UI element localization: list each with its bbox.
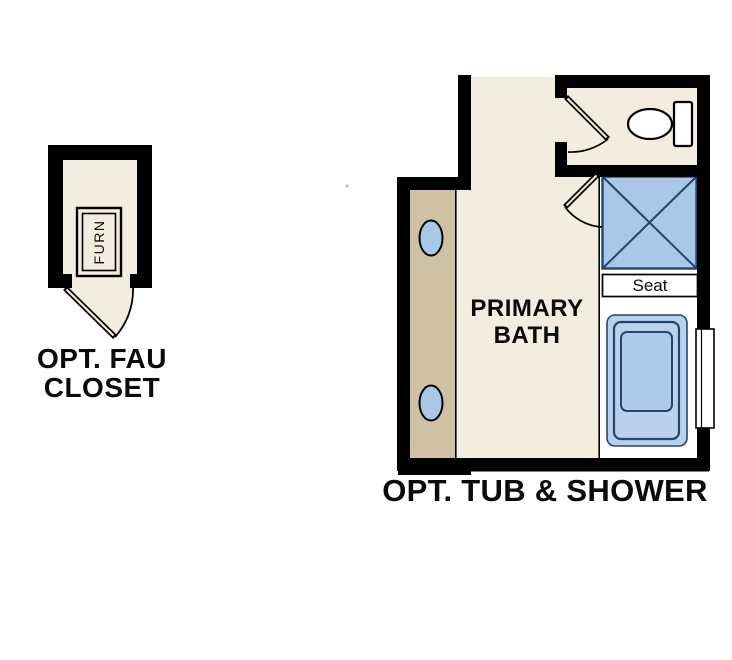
fau-closet-label-line1: OPT. FAU — [10, 344, 194, 373]
floor-plan: FURN OPT. FAU CLOSET PRIMARY BATH Seat O… — [0, 0, 732, 660]
floor-plan-drawing — [0, 0, 732, 660]
primary-bath-label: PRIMARY BATH — [437, 295, 617, 349]
bath-wall-entry-stub — [458, 75, 471, 190]
tub — [607, 315, 687, 446]
sink-oval-bottom — [420, 386, 443, 421]
closet-jamb-right — [130, 274, 152, 288]
primary-bath-label-line1: PRIMARY — [437, 295, 617, 322]
tub-basin — [621, 332, 672, 411]
toilet-room-jamb-top — [555, 75, 567, 98]
sink-oval-top — [420, 221, 443, 256]
toilet-room-wall-bottom — [555, 165, 709, 177]
closet-jamb-left — [48, 274, 72, 288]
toilet-bowl — [628, 109, 672, 139]
bath-wall-left — [397, 177, 410, 471]
tub-shower-label: OPT. TUB & SHOWER — [358, 474, 732, 507]
fau-closet-label-line2: CLOSET — [10, 373, 194, 402]
toilet-tank — [674, 102, 692, 146]
fau-closet-label: OPT. FAU CLOSET — [10, 344, 194, 402]
closet-wall-left — [48, 145, 63, 288]
furnace-label: FURN — [89, 202, 109, 282]
primary-bath-label-line2: BATH — [437, 322, 617, 349]
tub-window — [696, 329, 714, 428]
bath-wall-top — [555, 75, 709, 88]
stray-dot — [346, 185, 349, 188]
seat-label: Seat — [603, 275, 697, 296]
closet-wall-right — [137, 145, 152, 288]
closet-wall-top — [48, 145, 152, 160]
